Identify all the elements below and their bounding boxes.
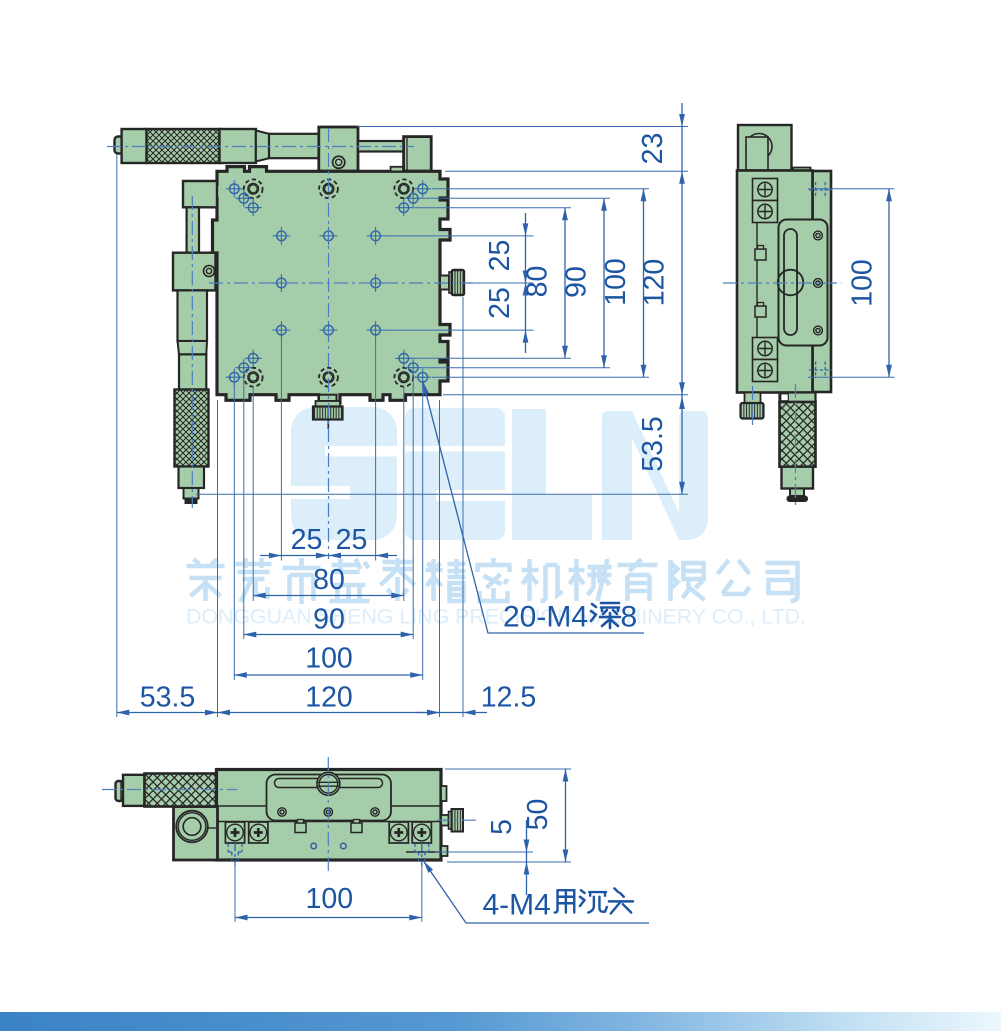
svg-text:80: 80	[313, 564, 345, 596]
svg-text:90: 90	[313, 604, 345, 636]
svg-text:100: 100	[306, 883, 354, 915]
svg-text:80: 80	[522, 266, 554, 298]
svg-text:100: 100	[847, 259, 879, 307]
svg-text:25: 25	[484, 287, 516, 319]
svg-text:4-M4: 4-M4	[483, 889, 551, 922]
svg-text:5: 5	[486, 819, 518, 835]
svg-text:8: 8	[621, 601, 638, 634]
svg-text:25: 25	[336, 524, 368, 556]
svg-text:12.5: 12.5	[481, 682, 536, 714]
svg-text:50: 50	[522, 799, 554, 831]
svg-text:25: 25	[484, 240, 516, 272]
svg-text:25: 25	[291, 524, 323, 556]
svg-text:100: 100	[305, 643, 353, 675]
svg-text:120: 120	[639, 259, 671, 307]
svg-text:23: 23	[637, 133, 669, 165]
svg-text:DONGGUAN SHENG LING PRECISION: DONGGUAN SHENG LING PRECISION MACHINERY …	[186, 605, 806, 629]
svg-text:53.5: 53.5	[637, 416, 669, 471]
svg-text:53.5: 53.5	[140, 682, 195, 714]
svg-text:90: 90	[561, 266, 593, 298]
svg-text:100: 100	[600, 258, 632, 306]
svg-text:20-M4: 20-M4	[503, 601, 588, 634]
svg-text:120: 120	[305, 682, 353, 714]
